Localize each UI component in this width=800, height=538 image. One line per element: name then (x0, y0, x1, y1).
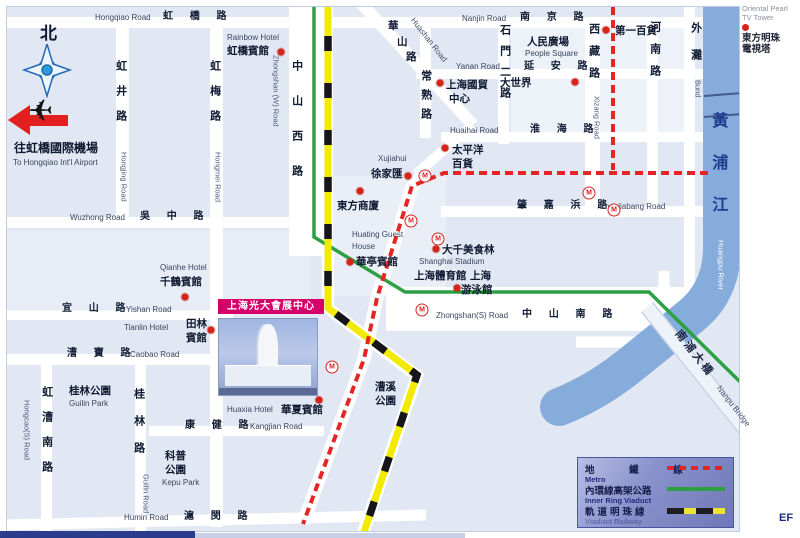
bund-zh: 外灘 (689, 22, 702, 76)
poi-dot (572, 79, 579, 86)
airport-direction-marker: ✈ (8, 96, 84, 144)
huashan-road-zh-3: 路 (406, 51, 417, 63)
wuzhong-road-zh: 吳 中 路 (140, 211, 211, 223)
metro-station-icon: M (405, 215, 418, 228)
oriental-pearl-note: Oriental Pearl TV Tower 東方明珠 電視塔 (742, 4, 800, 56)
hongmei-road-en: Hongmei Road (213, 152, 222, 202)
changshu-road-zh: 常熟路 (419, 70, 432, 127)
caobao-road-zh: 漕 寶 路 (67, 348, 138, 360)
poi-dot (357, 188, 364, 195)
huating-guest-house-zh: 華亭賓館 (356, 256, 398, 268)
legend-row-ring: 內環線高架公路 Inner Ring Viaduct (585, 483, 727, 504)
no1-department-store-zh: 第一百貨 (615, 25, 657, 37)
yanan-road-zh: 延 安 路 (524, 61, 595, 73)
kepu-park-en: Kepu Park (162, 478, 199, 487)
huaihai-road-zh: 淮 海 路 (530, 124, 601, 136)
great-world-zh: 大世界 (500, 77, 532, 89)
airport-zh: 往虹橋國際機場 (14, 142, 98, 156)
caobao-road-en: Caobao Road (130, 350, 179, 359)
kepu-park-zh1: 科普 (165, 450, 186, 462)
shanghai-stadium-en: Shanghai Stadium (419, 257, 484, 266)
legend-row-metro: 地 鐵 線 Metro (585, 462, 727, 483)
exhibition-center-caption: 上海光大會展中心 (218, 299, 324, 314)
hongqiao-road-zh: 虹 橋 路 (163, 11, 234, 23)
metro-line-sample (667, 466, 725, 470)
airport-en: To Hongqiao Int'l Airport (13, 158, 98, 167)
huating-guest-house-en1: Huating Guest (352, 230, 403, 239)
zhongshan-s-road-zh: 中 山 南 路 (522, 309, 619, 321)
intl-trade-center-zh1: 上海國貿 (446, 79, 488, 91)
oriental-pearl-zh1: 東方明珠 (742, 33, 800, 44)
wuzhong-road-en: Wuzhong Road (70, 213, 125, 222)
scanned-map-page: ✈ 上海光大會展中心 Hongqiao Road虹 橋 路Nanjin Road… (0, 0, 800, 538)
airplane-icon: ✈ (28, 94, 53, 129)
pacific-store-zh2: 百貨 (452, 158, 473, 170)
yishan-road-zh: 宜 山 路 (62, 303, 133, 315)
poi-dot (405, 173, 412, 180)
oriental-pearl-en1: Oriental Pearl (742, 4, 800, 13)
bund-en: Bund (693, 80, 702, 98)
hongcao-s-road-en: Hongcao(S) Road (22, 400, 31, 460)
guilin-park-zh: 桂林公園 (69, 385, 111, 397)
people-square-zh: 人民廣場 (527, 36, 569, 48)
poi-dot (742, 24, 749, 31)
guilin-road-en: Guilin Road (141, 474, 150, 513)
poi-dot (316, 397, 323, 404)
hongmei-road-zh: 虹梅路 (208, 60, 221, 135)
kepu-park-zh2: 公園 (165, 464, 186, 476)
corner-note: EF (779, 512, 793, 524)
swimming-pool-zh2: 游泳館 (461, 284, 493, 296)
hongcao-s-road-zh: 虹漕南路 (40, 386, 53, 486)
daqian-food-zh: 大千美食林 (442, 244, 495, 256)
legend: 地 鐵 線 Metro 內環線高架公路 Inner Ring Viaduct 軌… (577, 457, 734, 528)
people-square-en: People Square (525, 49, 578, 58)
pacific-store-zh1: 太平洋 (452, 144, 484, 156)
huaxia-hotel-en: Huaxia Hotel (227, 405, 273, 414)
xizang-road-en: Xizang Road (592, 96, 601, 139)
poi-dot (182, 294, 189, 301)
nanjing-road-zh: 南 京 路 (520, 12, 591, 24)
poi-dot (442, 145, 449, 152)
metro-station-icon: M (608, 204, 621, 217)
poi-dot (433, 246, 440, 253)
huashan-road-zh-1: 華 (388, 20, 399, 32)
north-label: 北 (40, 24, 57, 44)
intl-trade-center-zh2: 中心 (449, 93, 470, 105)
metro-station-icon: M (419, 170, 432, 183)
shimen-er-road-zh: 石門二路 (498, 24, 511, 108)
zhongshan-w-road-en: Zhongshan (W) Road (271, 55, 280, 127)
poi-dot (454, 285, 461, 292)
rainbow-hotel-zh: 虹橋賓館 (227, 45, 269, 57)
photo-base (219, 388, 317, 395)
tianlin-hotel-en: Tianlin Hotel (124, 323, 168, 332)
nanjing-road-en: Nanjin Road (462, 14, 506, 23)
hongqiao-road-en: Hongqiao Road (95, 13, 151, 22)
yishan-road-en: Yishan Road (126, 305, 172, 314)
exhibition-center-photo (218, 318, 318, 396)
page-edge (0, 531, 195, 538)
metro-station-icon: M (432, 233, 445, 246)
zhongshan-s-road-en: Zhongshan(S) Road (436, 311, 508, 320)
hongjing-road-en: Hongjing Road (119, 152, 128, 202)
qianhe-hotel-en: Qianhe Hotel (160, 263, 207, 272)
kangjian-road-en: Kangjian Road (250, 422, 302, 431)
huaihai-road-en: Huaihai Road (450, 126, 498, 135)
humin-road-zh: 滬 閔 路 (184, 511, 255, 523)
qianhe-hotel-zh: 千鶴賓館 (160, 276, 202, 288)
metro-station-icon: M (583, 187, 596, 200)
shanghai-stadium-zh: 上海體育館 (414, 270, 467, 282)
photo-hall (225, 365, 311, 386)
page-edge (195, 533, 465, 538)
kangjian-road-zh: 康 健 路 (185, 420, 256, 432)
poi-dot (208, 327, 215, 334)
legend-row-pearl: 軌道明珠線 Viaduct Railway (585, 504, 727, 525)
oriental-department-zh: 東方商廈 (337, 200, 379, 212)
yanan-road-en: Yanan Road (456, 62, 500, 71)
huashan-road-zh-2: 山 (397, 36, 408, 48)
xujiahui-en: Xujiahui (378, 154, 406, 163)
guilin-park-en: Guilin Park (69, 399, 108, 408)
huating-guest-house-en2: House (352, 242, 375, 251)
metro-station-icon: M (416, 304, 429, 317)
zhongshan-w-road-zh: 中山西路 (290, 60, 303, 200)
guilin-road-zh: 桂林路 (132, 388, 145, 469)
xujiahui-zh: 徐家匯 (371, 168, 403, 180)
swimming-pool-zh1: 上海 (470, 270, 491, 282)
tianlin-hotel-zh2: 賓館 (186, 332, 207, 344)
oriental-pearl-zh2: 電視塔 (742, 44, 800, 55)
poi-dot (347, 259, 354, 266)
rainbow-hotel-en: Rainbow Hotel (227, 33, 279, 42)
humin-road-en: Humin Road (124, 513, 168, 522)
huaxia-hotel-zh: 華夏賓館 (281, 404, 323, 416)
pearl-line-sample (667, 508, 725, 514)
xizang-road-zh: 西藏路 (587, 23, 600, 89)
compass-center (42, 65, 52, 75)
metro-station-icon: M (326, 361, 339, 374)
poi-dot (437, 80, 444, 87)
city-block (7, 231, 311, 309)
huangpu-river-en: Huangpu River (716, 240, 725, 290)
legend-pearl-en: Viaduct Railway (585, 517, 727, 526)
tianlin-hotel-zh1: 田林 (186, 318, 207, 330)
caoxi-park-zh1: 漕溪 (375, 381, 396, 393)
poi-dot (278, 49, 285, 56)
oriental-pearl-en2: TV Tower (742, 13, 800, 22)
huangpu-river-zh: 黃浦江 (708, 112, 726, 238)
hongjing-road-zh: 虹井路 (114, 60, 127, 135)
caoxi-park-zh2: 公園 (375, 395, 396, 407)
ring-line-sample (667, 487, 725, 491)
poi-dot (603, 27, 610, 34)
